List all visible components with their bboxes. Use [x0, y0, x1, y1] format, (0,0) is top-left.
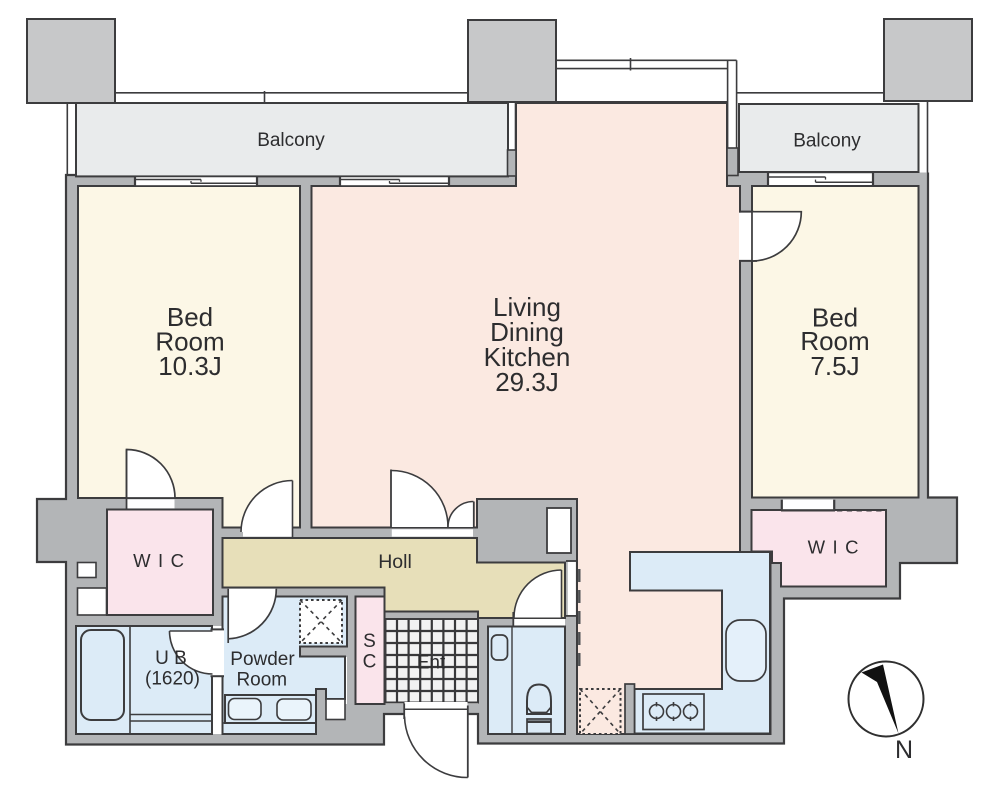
- svg-text:Powder: Powder: [230, 649, 295, 670]
- svg-text:Room: Room: [236, 670, 287, 691]
- svg-text:WIC: WIC: [133, 550, 191, 571]
- svg-text:N: N: [895, 736, 913, 764]
- svg-text:29.3J: 29.3J: [495, 367, 559, 397]
- svg-text:7.5J: 7.5J: [810, 351, 859, 381]
- svg-text:Balcony: Balcony: [793, 131, 861, 152]
- svg-text:(1620): (1620): [145, 669, 200, 690]
- svg-text:Balcony: Balcony: [257, 130, 325, 151]
- svg-text:Holl: Holl: [378, 551, 412, 573]
- svg-text:U B: U B: [155, 648, 187, 669]
- svg-text:C: C: [363, 652, 377, 673]
- svg-text:WIC: WIC: [808, 537, 866, 558]
- svg-text:10.3J: 10.3J: [158, 351, 222, 381]
- svg-text:Ent: Ent: [417, 653, 446, 674]
- svg-text:S: S: [363, 631, 376, 652]
